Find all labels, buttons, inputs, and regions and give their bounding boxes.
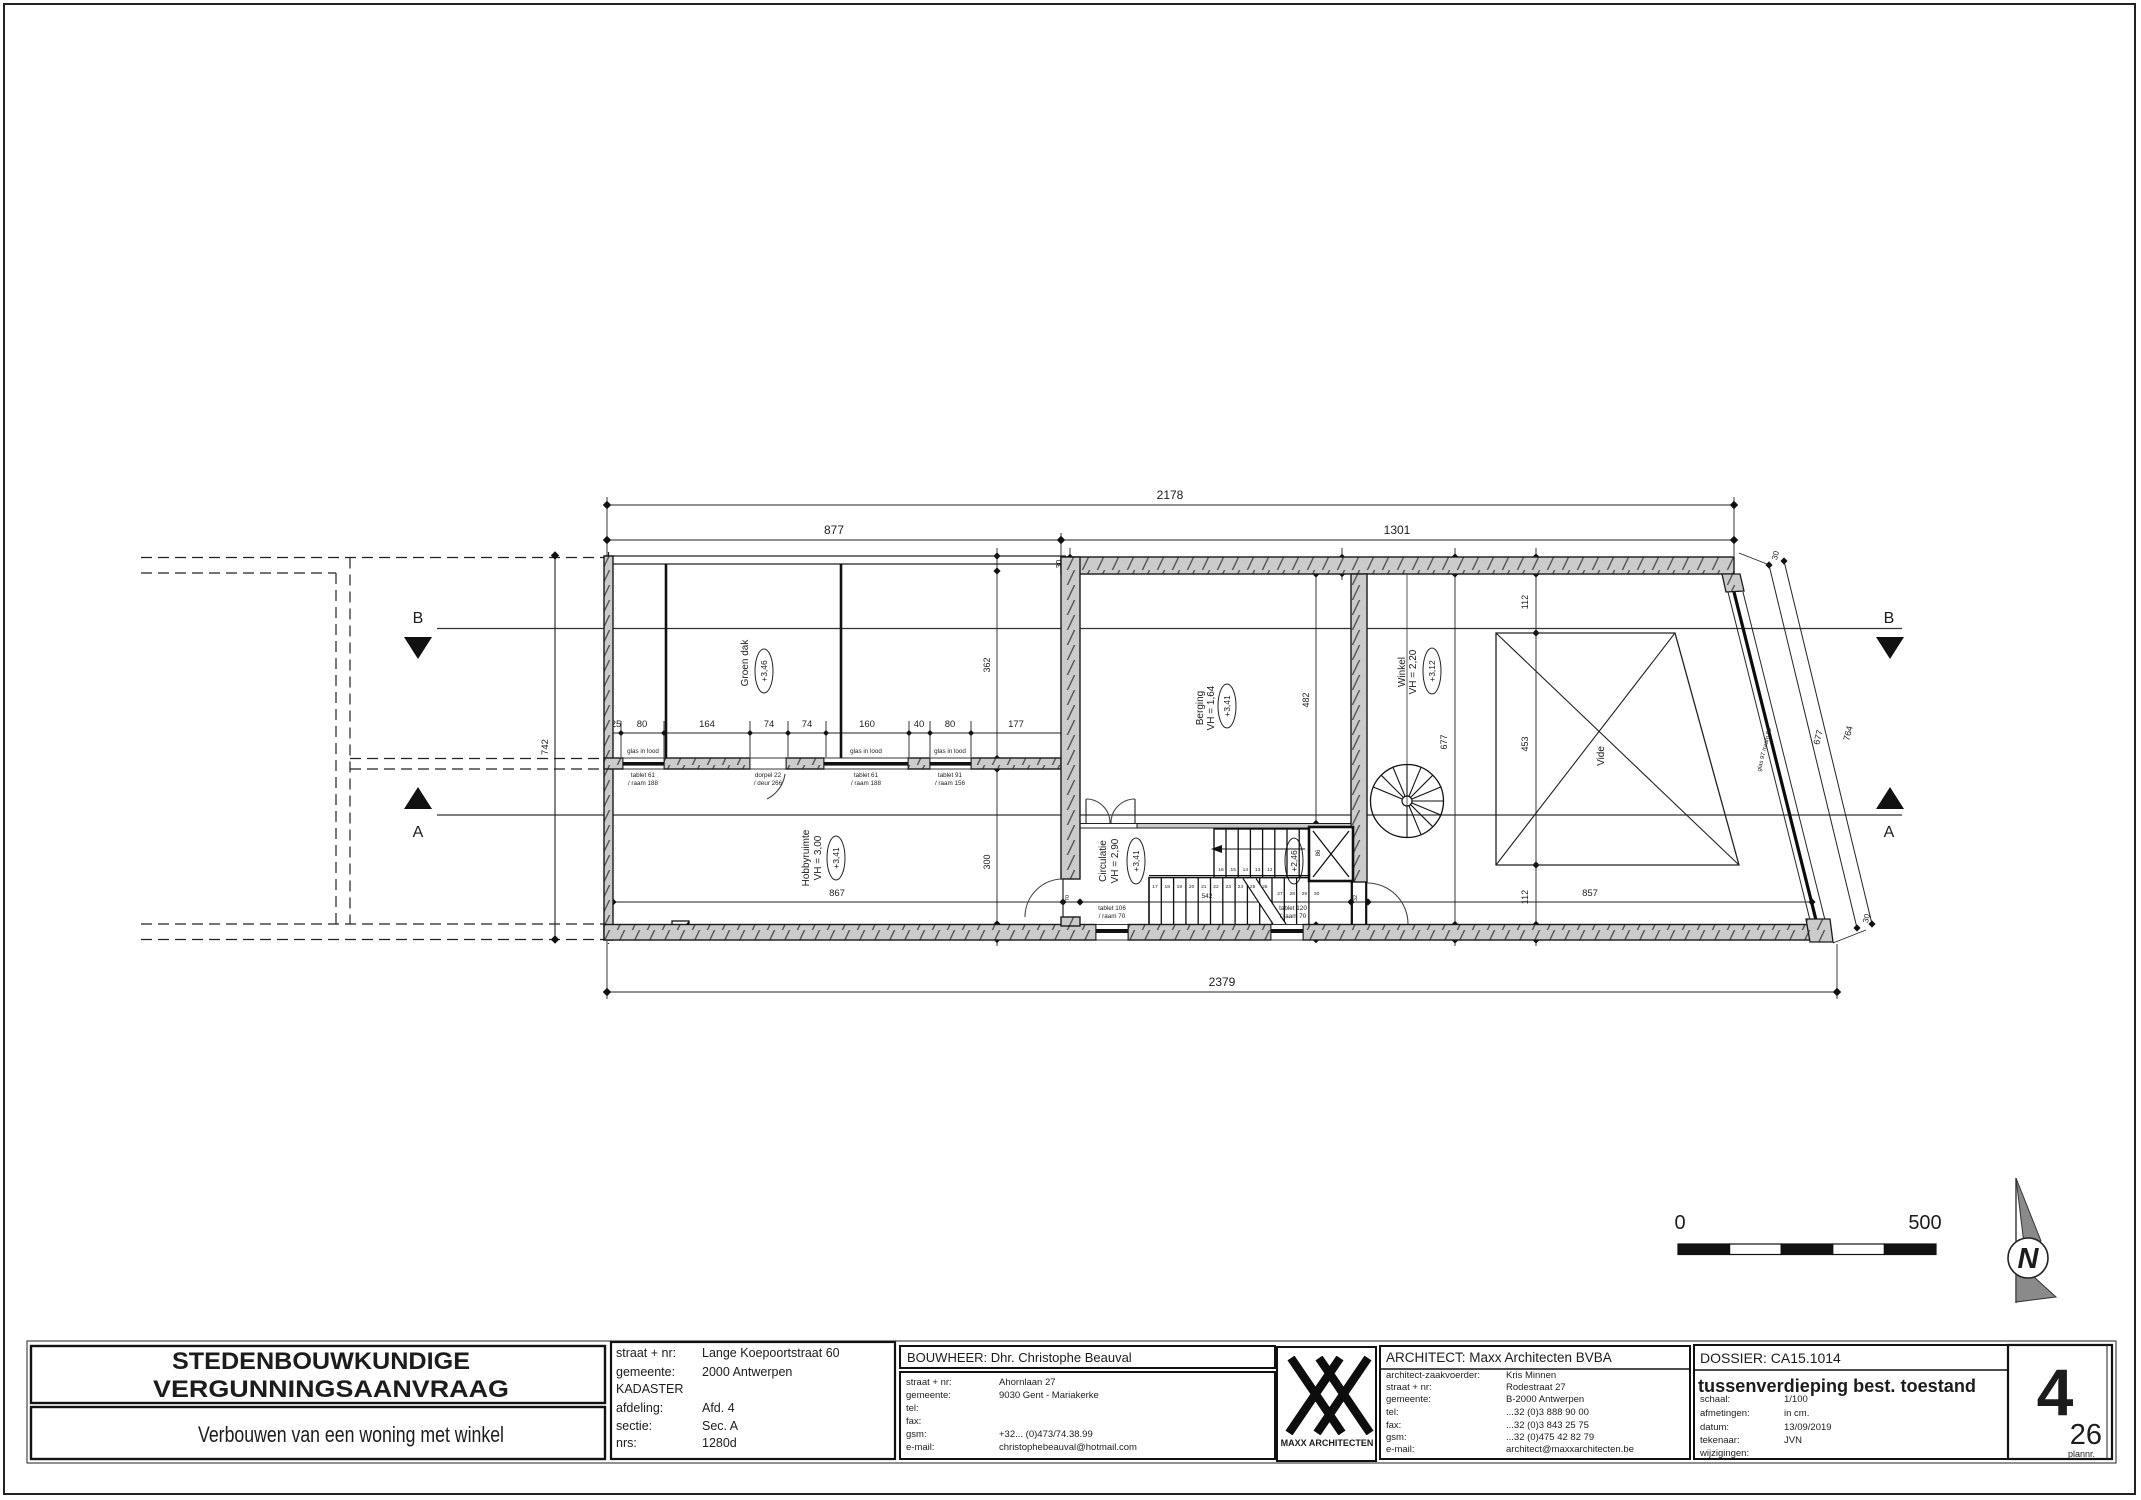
svg-text:B: B — [1884, 610, 1895, 627]
svg-text:28: 28 — [1289, 891, 1295, 897]
svg-text:86: 86 — [1316, 849, 1322, 856]
svg-text:1280d: 1280d — [702, 1436, 737, 1450]
svg-text:164: 164 — [699, 719, 715, 730]
svg-text:Vide: Vide — [1596, 746, 1607, 766]
svg-text:glas in lood: glas in lood — [934, 748, 966, 755]
svg-text:straat + nr:: straat + nr: — [1386, 1382, 1432, 1393]
svg-text:112: 112 — [1520, 595, 1530, 609]
svg-text:datum:: datum: — [1700, 1422, 1729, 1433]
svg-text:tablet 61: tablet 61 — [631, 772, 656, 779]
svg-text:24: 24 — [1238, 884, 1244, 890]
svg-text:+32... (0)473/74.38.99: +32... (0)473/74.38.99 — [999, 1429, 1093, 1440]
svg-text:gemeente:: gemeente: — [1386, 1394, 1431, 1405]
svg-text:DOSSIER: CA15.1014: DOSSIER: CA15.1014 — [1700, 1350, 1841, 1366]
svg-text:...32 (0)3 843 25 75: ...32 (0)3 843 25 75 — [1506, 1420, 1589, 1431]
svg-text:74: 74 — [802, 719, 813, 730]
svg-text:2178: 2178 — [1157, 488, 1184, 502]
svg-text:KADASTER: KADASTER — [616, 1382, 683, 1396]
svg-text:Lange Koepoortstraat 60: Lange Koepoortstraat 60 — [702, 1346, 840, 1360]
svg-text:21: 21 — [1201, 884, 1207, 890]
svg-text:architect@maxxarchitecten.be: architect@maxxarchitecten.be — [1506, 1444, 1634, 1455]
svg-text:Berging: Berging — [1195, 691, 1206, 725]
svg-text:straat + nr:: straat + nr: — [906, 1377, 952, 1388]
svg-text:40: 40 — [914, 719, 925, 730]
svg-text:in cm.: in cm. — [1784, 1408, 1809, 1419]
svg-text:300: 300 — [982, 854, 992, 869]
svg-text:christophebeauval@hotmail.com: christophebeauval@hotmail.com — [999, 1442, 1137, 1453]
svg-text:80: 80 — [945, 719, 956, 730]
svg-text:Groen dak: Groen dak — [740, 639, 751, 687]
svg-text:+3,41: +3,41 — [831, 847, 841, 869]
svg-text:26: 26 — [2070, 1419, 2102, 1451]
svg-text:+3,46: +3,46 — [759, 660, 769, 682]
svg-text:742: 742 — [540, 739, 551, 755]
svg-text:Sec. A: Sec. A — [702, 1419, 739, 1433]
svg-text:9030 Gent - Mariakerke: 9030 Gent - Mariakerke — [999, 1390, 1099, 1401]
svg-text:12: 12 — [1267, 867, 1273, 873]
svg-text:500: 500 — [1908, 1212, 1941, 1234]
svg-text:453: 453 — [1520, 736, 1530, 751]
svg-text:N: N — [2018, 1243, 2040, 1275]
svg-text:112: 112 — [1520, 890, 1530, 904]
svg-text:fax:: fax: — [906, 1416, 921, 1427]
svg-text:677: 677 — [1439, 734, 1449, 749]
svg-text:160: 160 — [859, 719, 875, 730]
svg-text:/ raam 70: / raam 70 — [1280, 913, 1307, 920]
svg-text:glas in lood: glas in lood — [850, 748, 882, 755]
svg-text:ARCHITECT: Maxx Architecten BV: ARCHITECT: Maxx Architecten BVBA — [1386, 1350, 1612, 1365]
svg-text:schaal:: schaal: — [1700, 1394, 1730, 1405]
svg-text:B-2000 Antwerpen: B-2000 Antwerpen — [1506, 1394, 1584, 1405]
svg-text:e-mail:: e-mail: — [1386, 1444, 1415, 1455]
svg-text:tel:: tel: — [906, 1403, 919, 1414]
svg-text:A: A — [1884, 824, 1895, 841]
svg-text:877: 877 — [824, 523, 844, 537]
svg-text:/ raam 156: / raam 156 — [935, 780, 966, 787]
svg-text:Ahornlaan 27: Ahornlaan 27 — [999, 1377, 1056, 1388]
svg-text:17: 17 — [1152, 884, 1158, 890]
svg-text:1/100: 1/100 — [1784, 1394, 1808, 1405]
svg-text:B: B — [413, 610, 424, 627]
svg-text:e-mail:: e-mail: — [906, 1442, 935, 1453]
svg-text:80: 80 — [637, 719, 648, 730]
svg-text:tablet 61: tablet 61 — [854, 772, 879, 779]
svg-text:+2,46: +2,46 — [1289, 850, 1299, 872]
svg-text:Kris Minnen: Kris Minnen — [1506, 1370, 1556, 1381]
svg-text:13: 13 — [1255, 867, 1261, 873]
svg-text:18: 18 — [1164, 884, 1170, 890]
svg-text:VERGUNNINGSAANVRAAG: VERGUNNINGSAANVRAAG — [153, 1376, 509, 1403]
svg-text:tablet 91: tablet 91 — [938, 772, 963, 779]
svg-text:23: 23 — [1225, 884, 1231, 890]
svg-text:wijzigingen:: wijzigingen: — [1699, 1448, 1749, 1459]
svg-text:+3,12: +3,12 — [1427, 660, 1437, 682]
svg-text:afmetingen:: afmetingen: — [1700, 1408, 1750, 1419]
svg-text:Winkel: Winkel — [1397, 657, 1408, 687]
svg-text:542: 542 — [1202, 893, 1213, 900]
svg-text:29: 29 — [1302, 891, 1308, 897]
svg-text:/ raam 70: / raam 70 — [1099, 913, 1126, 920]
svg-text:867: 867 — [829, 888, 845, 899]
svg-text:dorpel 22: dorpel 22 — [755, 772, 782, 779]
svg-text:straat + nr:: straat + nr: — [616, 1346, 676, 1360]
svg-text:MAXX ARCHITECTEN: MAXX ARCHITECTEN — [1281, 1438, 1374, 1448]
svg-text:plannr.: plannr. — [2068, 1449, 2095, 1459]
svg-text:16: 16 — [1218, 867, 1224, 873]
svg-text:15: 15 — [1230, 867, 1236, 873]
svg-text:26: 26 — [1262, 884, 1268, 890]
svg-text:tel:: tel: — [1386, 1407, 1399, 1418]
svg-text:gsm:: gsm: — [906, 1429, 927, 1440]
svg-text:20: 20 — [1189, 884, 1195, 890]
svg-text:gsm:: gsm: — [1386, 1432, 1407, 1443]
svg-text:Circulatie: Circulatie — [1098, 840, 1109, 882]
svg-text:1301: 1301 — [1384, 523, 1411, 537]
svg-text:Verbouwen van een woning met w: Verbouwen van een woning met winkel — [198, 1422, 504, 1447]
svg-text:482: 482 — [1301, 692, 1311, 707]
svg-text:27: 27 — [1277, 891, 1283, 897]
svg-text:...32 (0)3 888 90 00: ...32 (0)3 888 90 00 — [1506, 1407, 1589, 1418]
svg-text:+3,41: +3,41 — [1131, 850, 1141, 872]
svg-text:STEDENBOUWKUNDIGE: STEDENBOUWKUNDIGE — [172, 1348, 470, 1375]
svg-text:/ raam 188: / raam 188 — [628, 780, 659, 787]
svg-text:VH = 1,64: VH = 1,64 — [1206, 685, 1217, 730]
svg-text:857: 857 — [1582, 888, 1598, 899]
svg-text:Hobbyruimte: Hobbyruimte — [801, 829, 812, 886]
svg-text:gemeente:: gemeente: — [616, 1365, 675, 1379]
svg-text:BOUWHEER: Dhr. Christophe Bea: BOUWHEER: Dhr. Christophe Beauval — [907, 1350, 1132, 1365]
svg-text:A: A — [413, 824, 424, 841]
svg-text:70: 70 — [1065, 895, 1071, 901]
svg-text:2000 Antwerpen: 2000 Antwerpen — [702, 1365, 792, 1379]
svg-text:...32 (0)475 42 82 79: ...32 (0)475 42 82 79 — [1506, 1432, 1594, 1443]
svg-text:362: 362 — [982, 657, 992, 672]
svg-text:2379: 2379 — [1209, 975, 1236, 989]
svg-text:tablet 106: tablet 106 — [1098, 905, 1126, 912]
svg-text:architect-zaakvoerder:: architect-zaakvoerder: — [1386, 1370, 1480, 1381]
svg-text:/ deur 266: / deur 266 — [754, 780, 783, 787]
svg-text:JVN: JVN — [1784, 1435, 1802, 1446]
svg-text:gemeente:: gemeente: — [906, 1390, 951, 1401]
svg-text:sectie:: sectie: — [616, 1419, 652, 1433]
svg-text:VH = 2,90: VH = 2,90 — [1110, 838, 1121, 883]
svg-text:nrs:: nrs: — [616, 1436, 637, 1450]
svg-text:177: 177 — [1008, 719, 1024, 730]
svg-text:tekenaar:: tekenaar: — [1700, 1435, 1740, 1446]
svg-text:Afd. 4: Afd. 4 — [702, 1401, 735, 1415]
svg-text:74: 74 — [764, 719, 775, 730]
svg-text:19: 19 — [1177, 884, 1183, 890]
svg-text:14: 14 — [1243, 867, 1249, 873]
svg-text:25: 25 — [1250, 884, 1256, 890]
svg-text:0: 0 — [1674, 1212, 1685, 1234]
svg-text:+3,41: +3,41 — [1222, 695, 1232, 717]
svg-text:Rodestraat 27: Rodestraat 27 — [1506, 1382, 1566, 1393]
svg-text:13/09/2019: 13/09/2019 — [1784, 1422, 1832, 1433]
svg-text:4: 4 — [2037, 1355, 2074, 1429]
svg-text:VH = 2,20: VH = 2,20 — [1408, 649, 1419, 694]
svg-text:/ raam 188: / raam 188 — [851, 780, 882, 787]
svg-text:32: 32 — [1353, 895, 1359, 901]
svg-text:fax:: fax: — [1386, 1420, 1401, 1431]
svg-text:tablet 120: tablet 120 — [1279, 905, 1307, 912]
svg-text:VH = 3,00: VH = 3,00 — [813, 835, 824, 880]
svg-text:22: 22 — [1213, 884, 1219, 890]
svg-text:30: 30 — [1314, 891, 1320, 897]
svg-text:tussenverdieping best. toestan: tussenverdieping best. toestand — [1698, 1376, 1976, 1396]
svg-text:afdeling:: afdeling: — [616, 1401, 663, 1415]
svg-text:glas in lood: glas in lood — [627, 748, 659, 755]
